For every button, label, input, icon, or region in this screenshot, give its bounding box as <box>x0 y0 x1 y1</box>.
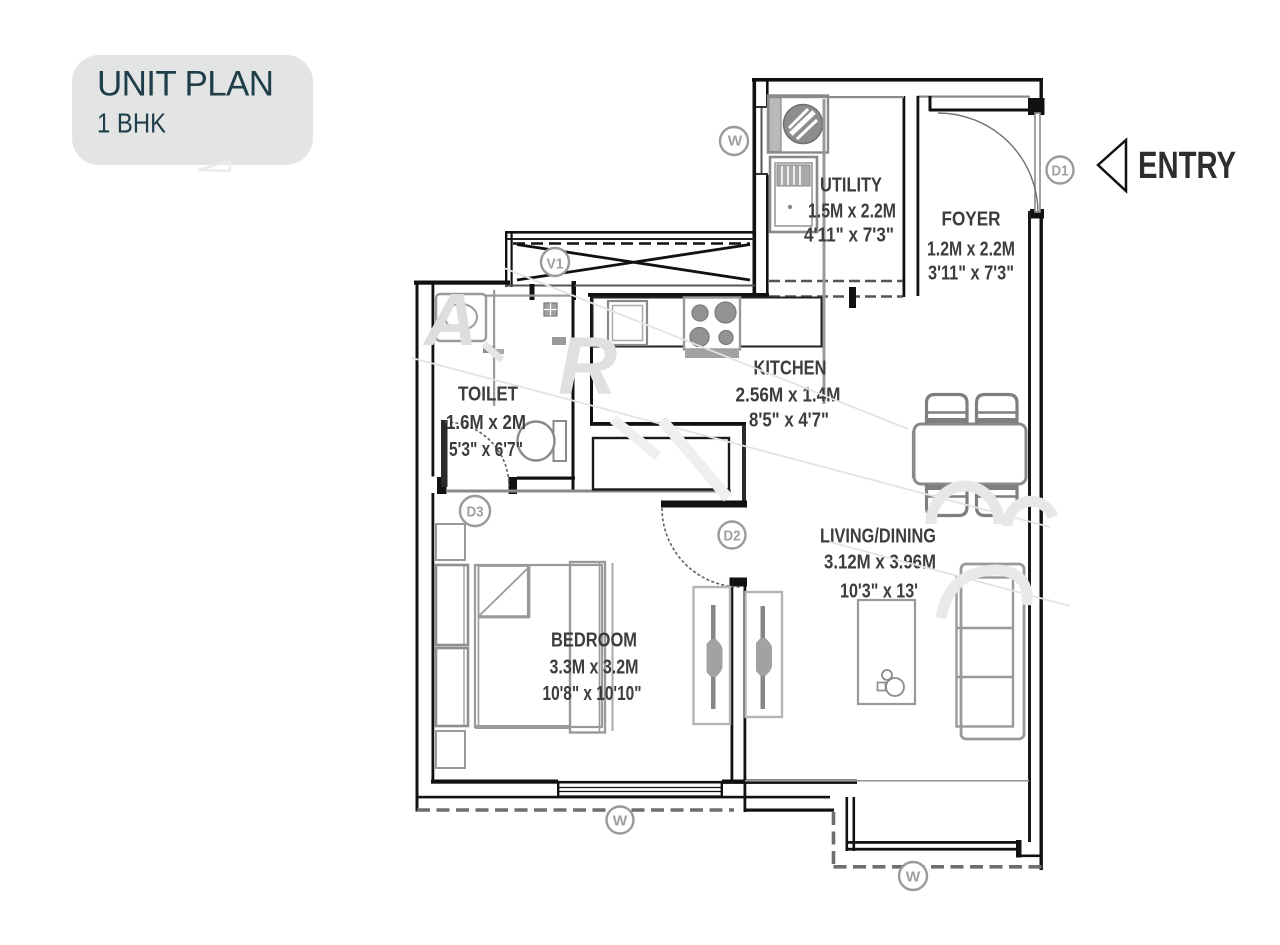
svg-text:5'3" x 6'7": 5'3" x 6'7" <box>449 439 523 461</box>
svg-text:1.6M x 2M: 1.6M x 2M <box>446 412 526 434</box>
svg-text:1.5M x 2.2M: 1.5M x 2.2M <box>808 201 896 223</box>
svg-text:1.2M x 2.2M: 1.2M x 2.2M <box>927 239 1015 261</box>
svg-text:10'8" x 10'10": 10'8" x 10'10" <box>543 683 642 705</box>
svg-text:4'11" x 7'3": 4'11" x 7'3" <box>804 225 894 247</box>
svg-text:UTILITY: UTILITY <box>820 175 883 197</box>
svg-text:3'11" x 7'3": 3'11" x 7'3" <box>928 263 1014 285</box>
svg-text:W: W <box>906 869 921 886</box>
svg-text:10'3" x 13': 10'3" x 13' <box>840 581 918 603</box>
svg-text:1 BHK: 1 BHK <box>97 108 166 139</box>
svg-text:V1: V1 <box>547 256 564 273</box>
svg-text:W: W <box>728 133 743 150</box>
svg-text:W: W <box>613 813 628 830</box>
svg-text:BEDROOM: BEDROOM <box>551 630 637 652</box>
svg-text:D2: D2 <box>724 528 741 545</box>
svg-text:8'5" x 4'7": 8'5" x 4'7" <box>749 410 829 432</box>
svg-text:D1: D1 <box>1052 163 1069 180</box>
svg-text:UNIT PLAN: UNIT PLAN <box>97 65 274 104</box>
svg-text:FOYER: FOYER <box>942 209 1001 231</box>
svg-text:A: A <box>422 278 477 361</box>
svg-text:KITCHEN: KITCHEN <box>754 358 827 380</box>
svg-text:TOILET: TOILET <box>458 384 518 406</box>
svg-text:ENTRY: ENTRY <box>1138 145 1236 187</box>
svg-text:3.3M x 3.2M: 3.3M x 3.2M <box>550 657 639 679</box>
svg-text:D3: D3 <box>467 504 484 521</box>
